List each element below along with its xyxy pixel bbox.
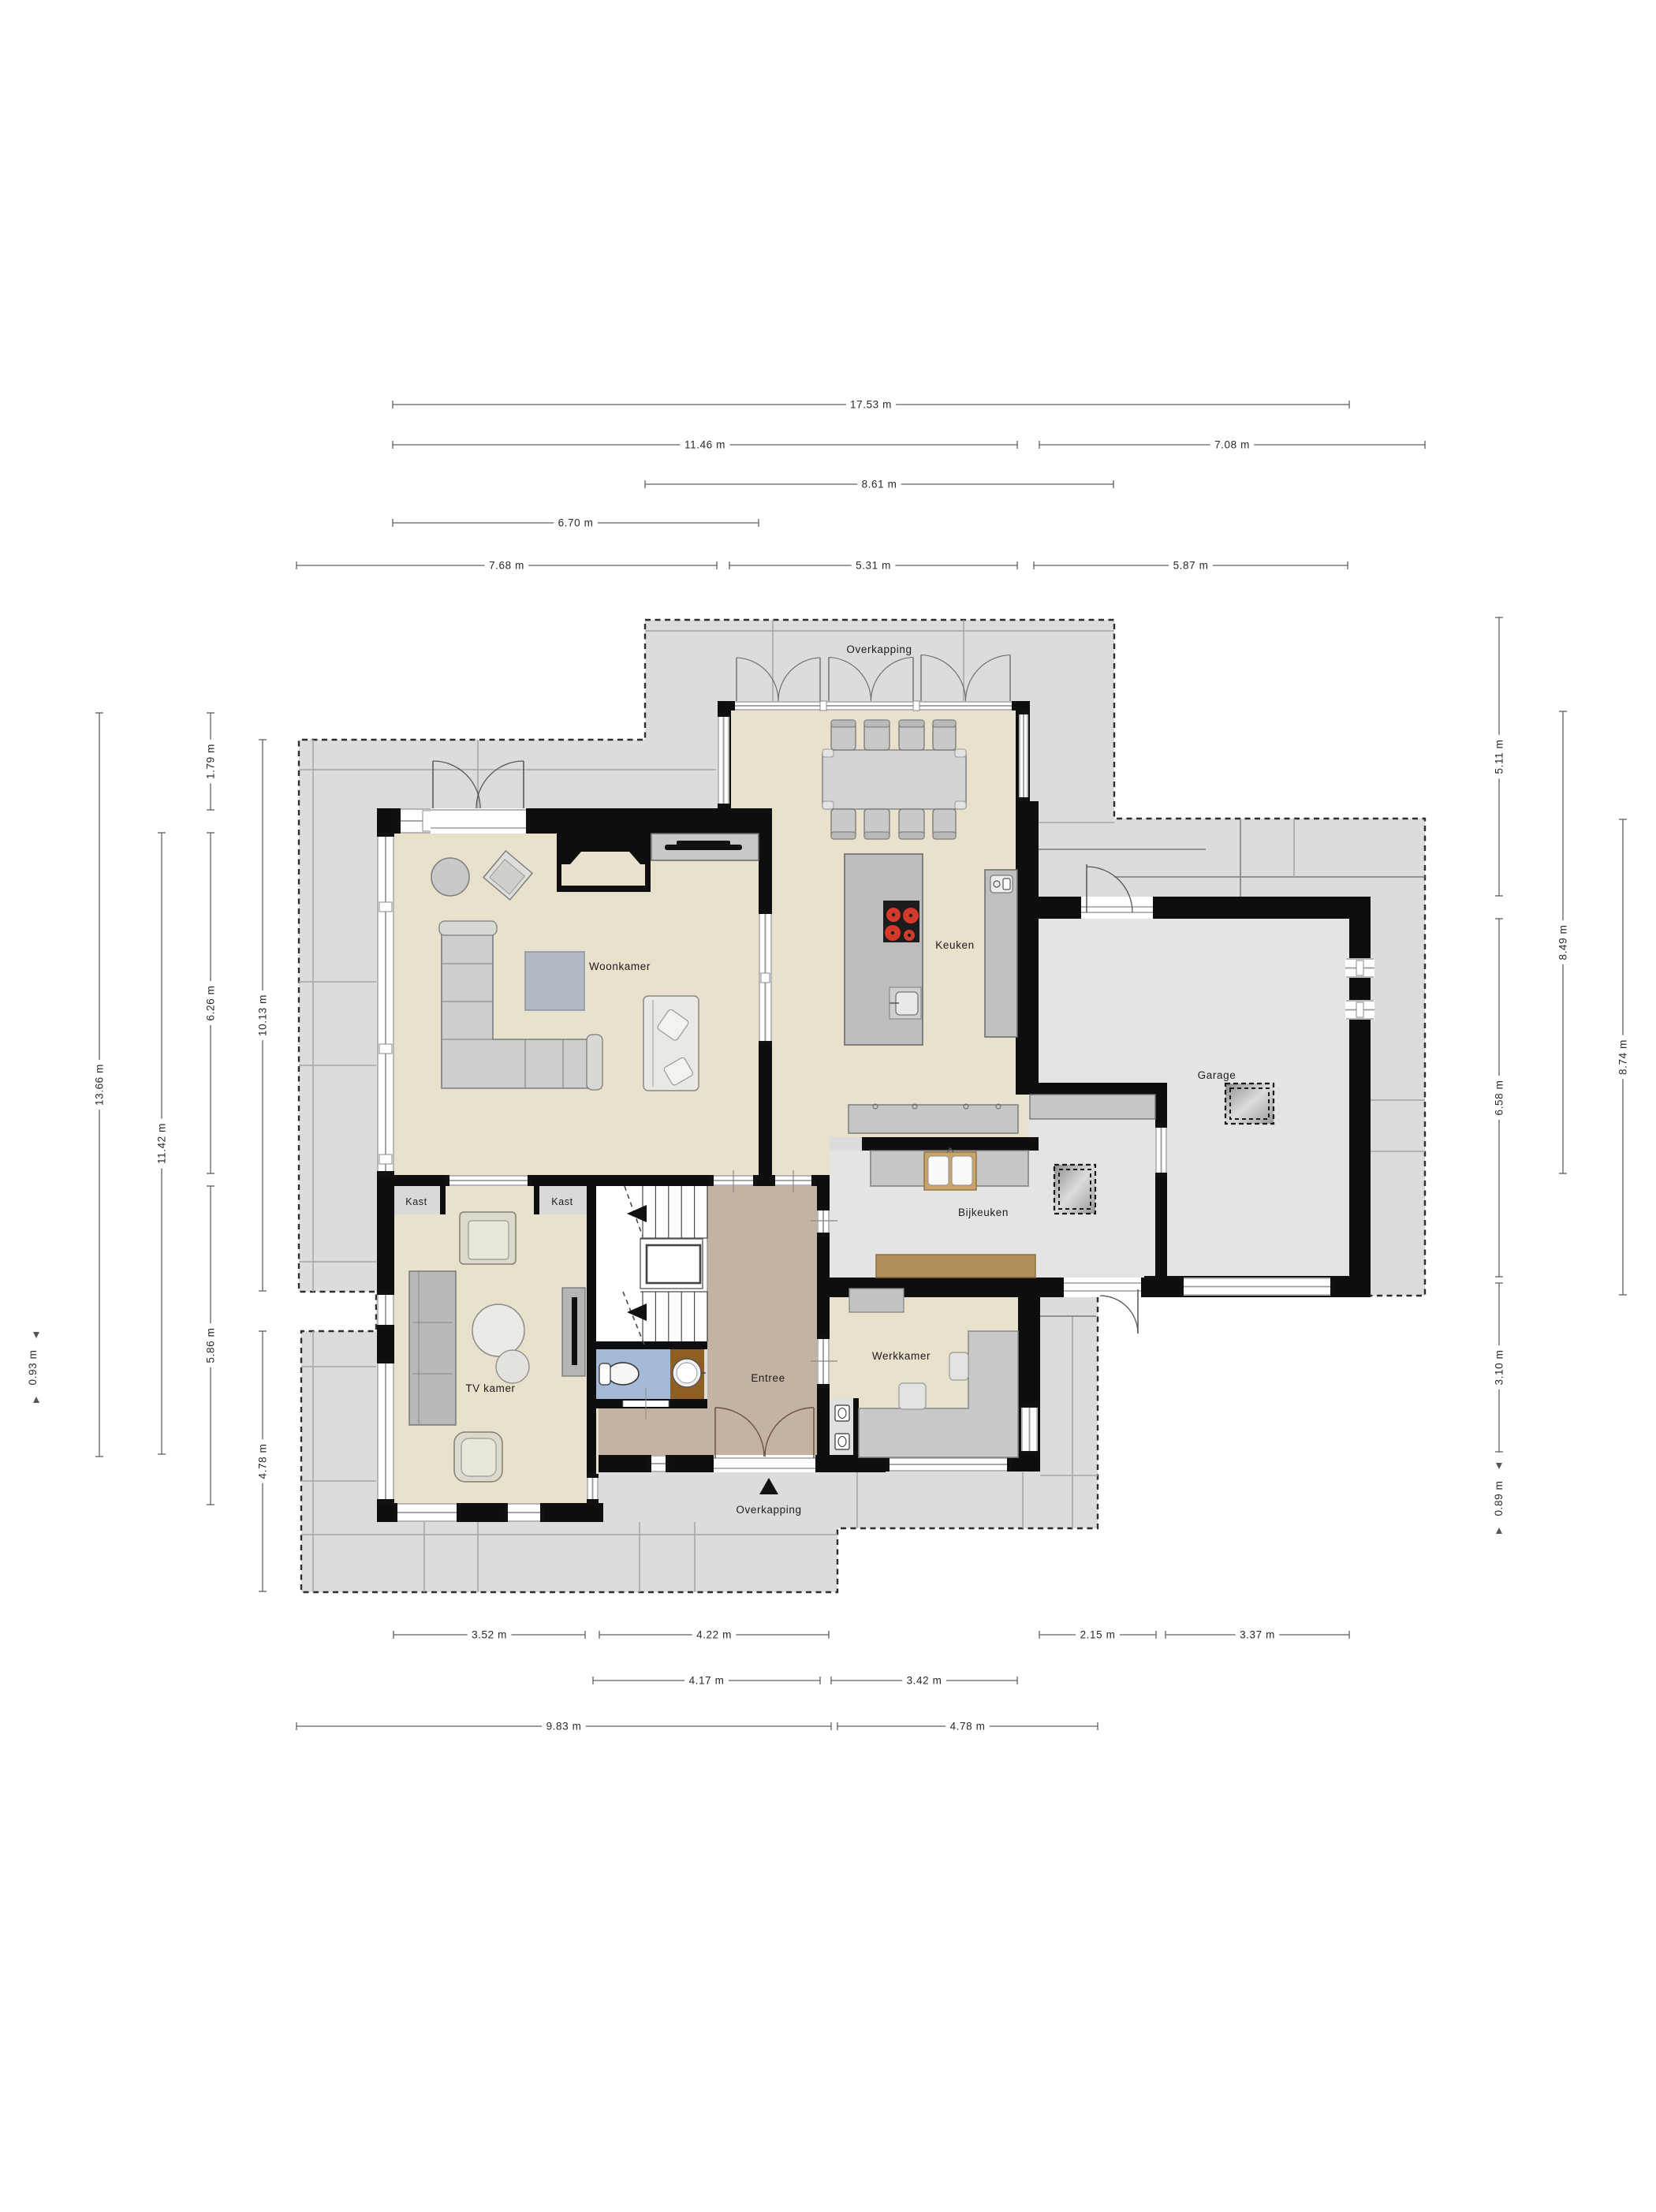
svg-text:3.42 m: 3.42 m <box>907 1675 942 1687</box>
svg-text:4.22 m: 4.22 m <box>696 1629 732 1641</box>
svg-text:11.46 m: 11.46 m <box>684 439 725 451</box>
svg-text:TV kamer: TV kamer <box>465 1382 515 1394</box>
svg-text:Entree: Entree <box>751 1372 785 1384</box>
svg-text:4.17 m: 4.17 m <box>689 1675 725 1687</box>
svg-text:Keuken: Keuken <box>935 939 974 951</box>
svg-text:7.08 m: 7.08 m <box>1214 439 1250 451</box>
svg-text:3.52 m: 3.52 m <box>472 1629 507 1641</box>
svg-text:10.13 m: 10.13 m <box>257 994 269 1036</box>
svg-text:Garage: Garage <box>1198 1069 1236 1081</box>
svg-text:8.74 m: 8.74 m <box>1617 1039 1629 1075</box>
svg-text:4.78 m: 4.78 m <box>257 1444 269 1479</box>
svg-text:13.66 m: 13.66 m <box>94 1064 106 1106</box>
svg-text:6.70 m: 6.70 m <box>558 517 594 529</box>
svg-text:Bijkeuken: Bijkeuken <box>958 1207 1009 1218</box>
svg-text:3.37 m: 3.37 m <box>1240 1629 1275 1641</box>
svg-text:1.79 m: 1.79 m <box>205 744 217 779</box>
svg-text:17.53 m: 17.53 m <box>850 399 892 411</box>
svg-text:Kast: Kast <box>405 1196 427 1207</box>
svg-text:4.78 m: 4.78 m <box>950 1721 986 1733</box>
svg-text:0.93 m: 0.93 m <box>27 1350 39 1386</box>
svg-text:Overkapping: Overkapping <box>846 643 912 655</box>
svg-text:2.15 m: 2.15 m <box>1080 1629 1116 1641</box>
svg-text:6.58 m: 6.58 m <box>1494 1080 1505 1116</box>
svg-text:Werkkamer: Werkkamer <box>872 1350 931 1362</box>
svg-text:5.31 m: 5.31 m <box>856 560 891 572</box>
svg-text:8.61 m: 8.61 m <box>862 479 897 491</box>
svg-text:Overkapping: Overkapping <box>736 1504 801 1516</box>
svg-text:Woonkamer: Woonkamer <box>589 961 651 972</box>
svg-text:0.89 m: 0.89 m <box>1493 1481 1505 1516</box>
svg-text:8.49 m: 8.49 m <box>1557 925 1569 961</box>
svg-text:11.42 m: 11.42 m <box>156 1123 168 1164</box>
svg-text:6.26 m: 6.26 m <box>205 986 217 1021</box>
svg-text:7.68 m: 7.68 m <box>489 560 524 572</box>
svg-text:9.83 m: 9.83 m <box>546 1721 582 1733</box>
svg-text:Kast: Kast <box>551 1196 573 1207</box>
svg-text:3.10 m: 3.10 m <box>1494 1350 1505 1386</box>
svg-text:5.86 m: 5.86 m <box>205 1328 217 1363</box>
svg-text:5.11 m: 5.11 m <box>1494 740 1505 774</box>
svg-text:5.87 m: 5.87 m <box>1173 560 1209 572</box>
